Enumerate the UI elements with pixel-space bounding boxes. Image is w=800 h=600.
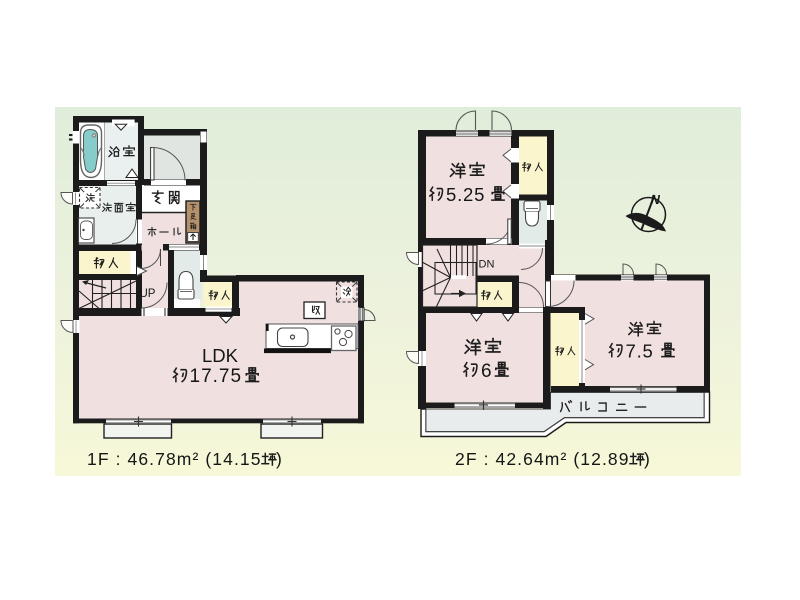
svg-text:): )	[644, 449, 651, 469]
svg-text:7.5: 7.5	[626, 341, 654, 362]
svg-text:6: 6	[481, 361, 492, 382]
svg-text:N: N	[651, 192, 661, 207]
svg-text:DN: DN	[479, 259, 495, 271]
svg-text:17.75: 17.75	[190, 366, 243, 387]
svg-text:LDK: LDK	[202, 345, 239, 366]
svg-text:1F : 46.78m² (14.15: 1F : 46.78m² (14.15	[87, 449, 262, 469]
svg-text:): )	[276, 449, 283, 469]
svg-text:UP: UP	[140, 288, 156, 300]
svg-text:2F : 42.64m² (12.89: 2F : 42.64m² (12.89	[455, 449, 630, 469]
svg-text:5.25: 5.25	[446, 184, 485, 205]
